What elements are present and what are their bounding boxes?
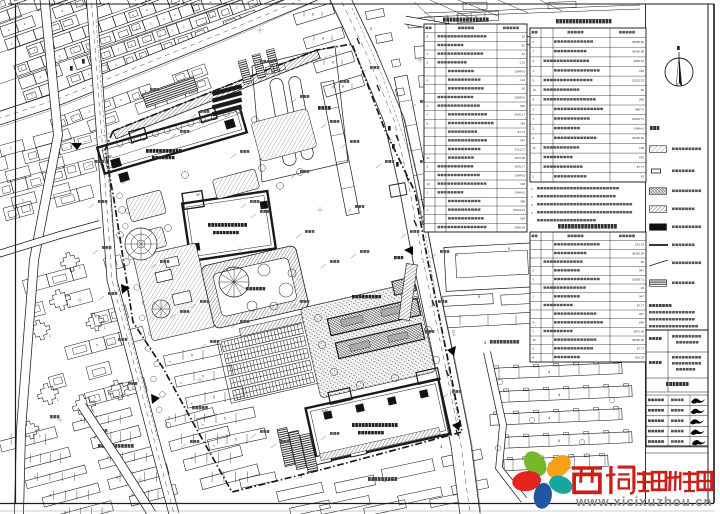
svg-text:-2/5F: -2/5F <box>104 155 113 159</box>
svg-text:1: 1 <box>104 38 106 42</box>
svg-text:87.77: 87.77 <box>518 130 526 134</box>
svg-text:1.: 1. <box>531 187 534 191</box>
svg-text:2: 2 <box>146 8 148 12</box>
svg-text:2: 2 <box>34 48 36 52</box>
svg-text:651.33: 651.33 <box>635 355 644 359</box>
svg-text:82: 82 <box>641 175 645 179</box>
svg-text:3: 3 <box>440 445 442 449</box>
svg-text:2: 2 <box>120 98 122 102</box>
svg-text:1: 1 <box>88 73 90 77</box>
svg-text:4: 4 <box>80 418 82 422</box>
svg-text:5: 5 <box>478 295 480 299</box>
svg-text:148: 148 <box>520 182 525 186</box>
svg-text:1: 1 <box>22 199 24 203</box>
svg-text:30346.98: 30346.98 <box>632 50 644 54</box>
svg-text:25085.96: 25085.96 <box>632 40 644 44</box>
svg-text:62: 62 <box>522 35 526 39</box>
svg-text:2: 2 <box>11 41 13 45</box>
svg-text:15936.71: 15936.71 <box>632 277 644 281</box>
svg-text:10: 10 <box>533 88 537 92</box>
svg-text:1: 1 <box>145 38 147 42</box>
svg-text:87.77: 87.77 <box>637 347 645 351</box>
svg-text:1: 1 <box>39 434 41 438</box>
svg-text:1F: 1F <box>196 193 200 197</box>
svg-text:1: 1 <box>171 28 173 32</box>
svg-text:5: 5 <box>456 253 458 257</box>
svg-text:580: 580 <box>520 104 525 108</box>
svg-text:*: * <box>202 423 204 428</box>
svg-text:*: * <box>180 381 182 386</box>
svg-text:15484.0: 15484.0 <box>515 69 526 73</box>
svg-text:2: 2 <box>72 116 74 120</box>
svg-text:580: 580 <box>639 98 644 102</box>
svg-text:2: 2 <box>8 28 10 32</box>
svg-text:4: 4 <box>191 456 193 460</box>
svg-text:www.xicixuzhou.cn: www.xicixuzhou.cn <box>575 494 712 509</box>
svg-text:6: 6 <box>312 13 314 17</box>
svg-text:947: 947 <box>639 295 644 299</box>
svg-text:1: 1 <box>104 52 106 56</box>
svg-text:*: * <box>191 402 193 407</box>
svg-text:6: 6 <box>322 37 324 41</box>
svg-text:2.: 2. <box>531 195 534 199</box>
svg-text:15484.0: 15484.0 <box>515 173 526 177</box>
svg-text:2: 2 <box>236 6 238 10</box>
svg-text:2: 2 <box>131 43 133 47</box>
svg-text:10: 10 <box>533 338 537 342</box>
svg-text:33055.96: 33055.96 <box>632 136 644 140</box>
svg-text:5: 5 <box>202 375 204 379</box>
svg-text:4572.38: 4572.38 <box>634 329 645 333</box>
svg-text:3: 3 <box>168 416 170 420</box>
svg-text:15484.0: 15484.0 <box>515 95 526 99</box>
svg-text:2: 2 <box>212 14 214 18</box>
svg-text:6: 6 <box>342 85 344 89</box>
svg-text:3860.64: 3860.64 <box>634 59 645 63</box>
svg-text:2: 2 <box>136 26 138 30</box>
svg-text:3: 3 <box>116 475 118 479</box>
svg-text:2: 2 <box>141 54 143 58</box>
svg-text:2: 2 <box>183 24 185 28</box>
svg-text:82: 82 <box>641 260 645 264</box>
svg-text:15484.0: 15484.0 <box>634 127 645 131</box>
svg-text:3: 3 <box>94 436 96 440</box>
svg-text:87.77: 87.77 <box>637 165 645 169</box>
svg-text:2: 2 <box>159 33 161 37</box>
svg-text:3: 3 <box>131 494 133 498</box>
svg-text:1: 1 <box>21 67 23 71</box>
svg-text:1.22: 1.22 <box>519 78 525 82</box>
svg-text:2: 2 <box>118 48 120 52</box>
svg-text:33055.96: 33055.96 <box>632 338 644 342</box>
svg-text:11: 11 <box>533 146 536 150</box>
svg-text:498: 498 <box>520 199 525 203</box>
svg-text:1: 1 <box>104 326 106 330</box>
svg-text:1: 1 <box>69 304 71 308</box>
svg-text:5: 5 <box>96 343 98 347</box>
svg-text:22023.33: 22023.33 <box>632 78 644 82</box>
svg-text:5: 5 <box>191 354 193 358</box>
svg-text:947: 947 <box>639 312 644 316</box>
svg-text:299: 299 <box>520 217 525 221</box>
svg-text:2: 2 <box>62 9 64 13</box>
svg-text:4.: 4. <box>531 211 534 215</box>
svg-text:1: 1 <box>57 398 59 402</box>
svg-text:4005.17: 4005.17 <box>515 165 526 169</box>
svg-text:1: 1 <box>135 0 137 2</box>
svg-text:3.: 3. <box>531 203 534 207</box>
svg-text:5: 5 <box>235 438 237 442</box>
svg-text:22023.33: 22023.33 <box>513 208 525 212</box>
svg-text:2: 2 <box>39 75 41 79</box>
svg-text:2: 2 <box>174 13 176 17</box>
svg-text:2: 2 <box>163 17 165 21</box>
svg-text:-1/4F: -1/4F <box>320 409 329 413</box>
svg-text:1: 1 <box>49 334 51 338</box>
svg-text:2: 2 <box>24 22 26 26</box>
svg-text:148: 148 <box>639 69 644 73</box>
svg-text:148: 148 <box>520 121 525 125</box>
svg-text:2: 2 <box>73 49 75 53</box>
svg-text:651.33: 651.33 <box>635 243 644 247</box>
svg-text:5: 5 <box>370 27 372 31</box>
svg-text:1: 1 <box>79 266 81 270</box>
svg-text:5: 5 <box>94 396 96 400</box>
svg-text:8867.6: 8867.6 <box>635 107 644 111</box>
svg-text:4572.38: 4572.38 <box>515 156 526 160</box>
svg-text:82: 82 <box>641 88 645 92</box>
svg-text:2: 2 <box>89 110 91 114</box>
svg-text:6: 6 <box>332 61 334 65</box>
svg-text:26: 26 <box>522 87 526 91</box>
svg-text:1.22: 1.22 <box>519 61 525 65</box>
svg-text:5: 5 <box>224 417 226 421</box>
svg-text:5: 5 <box>213 396 215 400</box>
svg-text:1: 1 <box>10 147 12 151</box>
svg-text:3: 3 <box>107 456 109 460</box>
svg-text:3: 3 <box>49 494 51 498</box>
svg-text:3: 3 <box>34 475 36 479</box>
svg-text:947: 947 <box>520 139 525 143</box>
svg-text:15936.71: 15936.71 <box>632 117 644 121</box>
svg-text:2: 2 <box>150 22 152 26</box>
svg-text:2: 2 <box>132 13 134 17</box>
svg-text:15484.0: 15484.0 <box>515 191 526 195</box>
svg-text:62: 62 <box>522 52 526 56</box>
svg-text:580: 580 <box>639 321 644 325</box>
svg-text:30346.98: 30346.98 <box>632 251 644 255</box>
svg-text:1: 1 <box>93 410 95 414</box>
svg-text:2: 2 <box>31 93 33 97</box>
svg-text:62: 62 <box>522 43 526 47</box>
svg-text:4005.17: 4005.17 <box>515 113 526 117</box>
svg-text:534: 534 <box>639 155 644 159</box>
svg-text:1: 1 <box>127 394 129 398</box>
svg-text:11: 11 <box>427 156 430 160</box>
svg-text:3860.64: 3860.64 <box>515 225 526 229</box>
svg-text:2: 2 <box>115 63 117 67</box>
svg-text:138: 138 <box>639 146 644 150</box>
svg-text:947: 947 <box>639 269 644 273</box>
svg-text:87.77: 87.77 <box>637 303 645 307</box>
svg-text:26: 26 <box>641 286 645 290</box>
svg-text:*: * <box>213 444 215 449</box>
svg-text:10: 10 <box>427 182 431 186</box>
svg-text:21312.3: 21312.3 <box>515 147 526 151</box>
svg-text:5: 5 <box>508 247 510 251</box>
svg-text:*: * <box>169 360 171 365</box>
svg-text:5: 5 <box>132 385 134 389</box>
